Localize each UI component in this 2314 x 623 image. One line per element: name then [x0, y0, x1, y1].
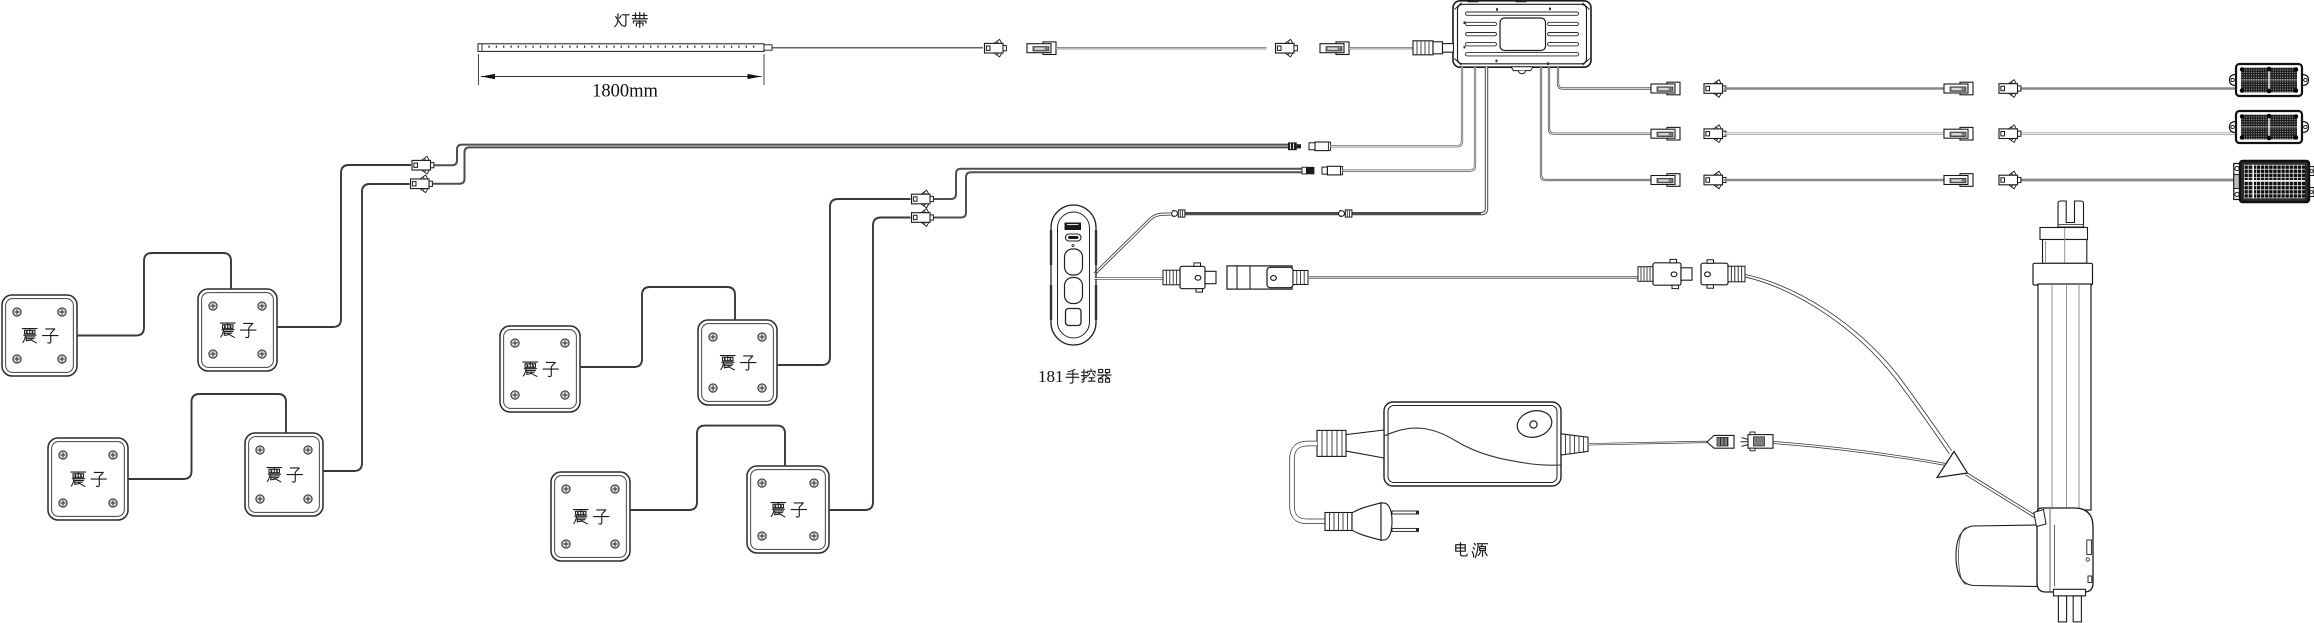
svg-text:1800mm: 1800mm — [592, 82, 658, 102]
svg-text:181: 181 — [1038, 367, 1064, 386]
